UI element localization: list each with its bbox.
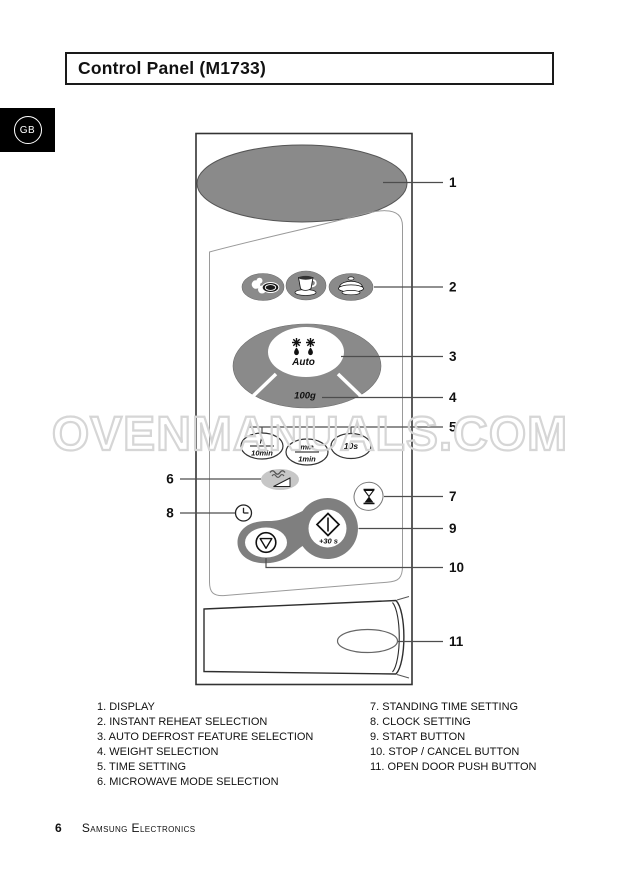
legend-item: 1. DISPLAY [97,700,313,715]
time-min-top-label: min [300,443,314,452]
start-boost-label: +30 s [319,537,338,546]
callout-1-label: 1 [449,175,457,190]
control-panel-diagram: Auto 100g h 10min min 1min 10s [0,0,620,700]
legend-item: 4. WEIGHT SELECTION [97,745,313,760]
callout-11-label: 11 [449,634,464,649]
brand-name: Samsung Electronics [82,821,196,835]
weight-label: 100g [294,391,316,402]
clock-setting-button [236,505,252,521]
callout-5-label: 5 [449,420,457,435]
standing-time-button [354,482,383,510]
auto-label: Auto [291,357,315,368]
callout-9-label: 9 [449,521,457,536]
callout-8-label: 8 [166,506,174,521]
callout-7-label: 7 [449,489,457,504]
start-button: +30 s [309,510,347,548]
legend-left-column: 1. DISPLAY 2. INSTANT REHEAT SELECTION 3… [97,700,313,791]
legend-item: 9. START BUTTON [370,730,536,745]
callout-2-label: 2 [449,280,457,295]
time-min-1min-button: min 1min [286,439,328,465]
instant-reheat-plate-button [242,274,284,301]
legend-item: 6. MICROWAVE MODE SELECTION [97,775,313,790]
legend-item: 11. OPEN DOOR PUSH BUTTON [370,760,536,775]
page-footer: 6 Samsung Electronics [55,821,196,835]
legend-item: 3. AUTO DEFROST FEATURE SELECTION [97,730,313,745]
instant-reheat-beverage-button [286,271,326,300]
callout-3-label: 3 [449,349,457,364]
instant-reheat-meal-button [329,274,373,301]
callout-6-label: 6 [166,472,174,487]
time-h-10min-button: h 10min [241,433,283,459]
callout-10-label: 10 [449,560,464,575]
legend-item: 5. TIME SETTING [97,760,313,775]
legend-right-column: 7. STANDING TIME SETTING 8. CLOCK SETTIN… [370,700,536,775]
page-number: 6 [55,821,62,835]
time-h-bottom-label: 10min [251,449,273,458]
time-min-bottom-label: 1min [298,455,316,464]
legend-item: 10. STOP / CANCEL BUTTON [370,745,536,760]
stop-cancel-button [245,528,287,558]
time-10s-label: 10s [344,441,358,451]
time-h-top-label: h [260,437,265,446]
display-ellipse [197,145,407,222]
auto-defrost-dial: Auto 100g [233,324,381,408]
callout-4-label: 4 [449,390,457,405]
time-10s-button: 10s [331,434,371,459]
legend-item: 7. STANDING TIME SETTING [370,700,536,715]
manual-page: GB Control Panel (M1733) [0,0,620,872]
legend-item: 8. CLOCK SETTING [370,715,536,730]
legend-item: 2. INSTANT REHEAT SELECTION [97,715,313,730]
microwave-mode-button [261,469,299,490]
